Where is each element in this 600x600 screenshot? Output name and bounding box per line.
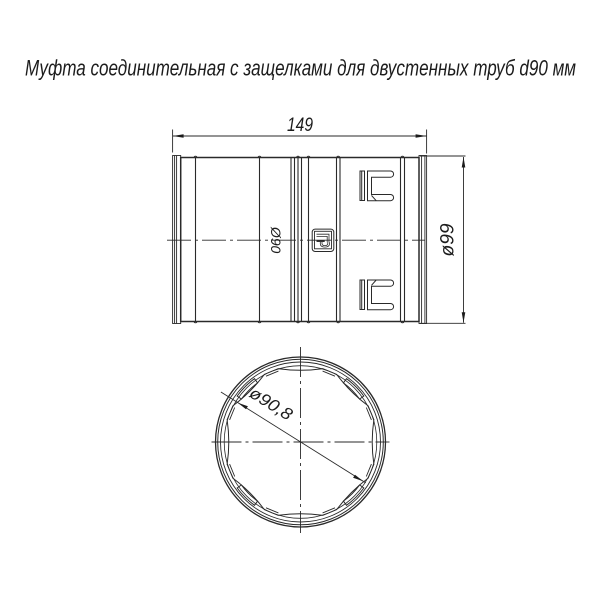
svg-text:ø99: ø99 <box>438 223 459 256</box>
svg-text:Муфта соединительная с защелка: Муфта соединительная с защелками для дву… <box>25 55 576 80</box>
svg-text:Ø90: Ø90 <box>268 226 284 253</box>
svg-text:149: 149 <box>287 115 313 136</box>
